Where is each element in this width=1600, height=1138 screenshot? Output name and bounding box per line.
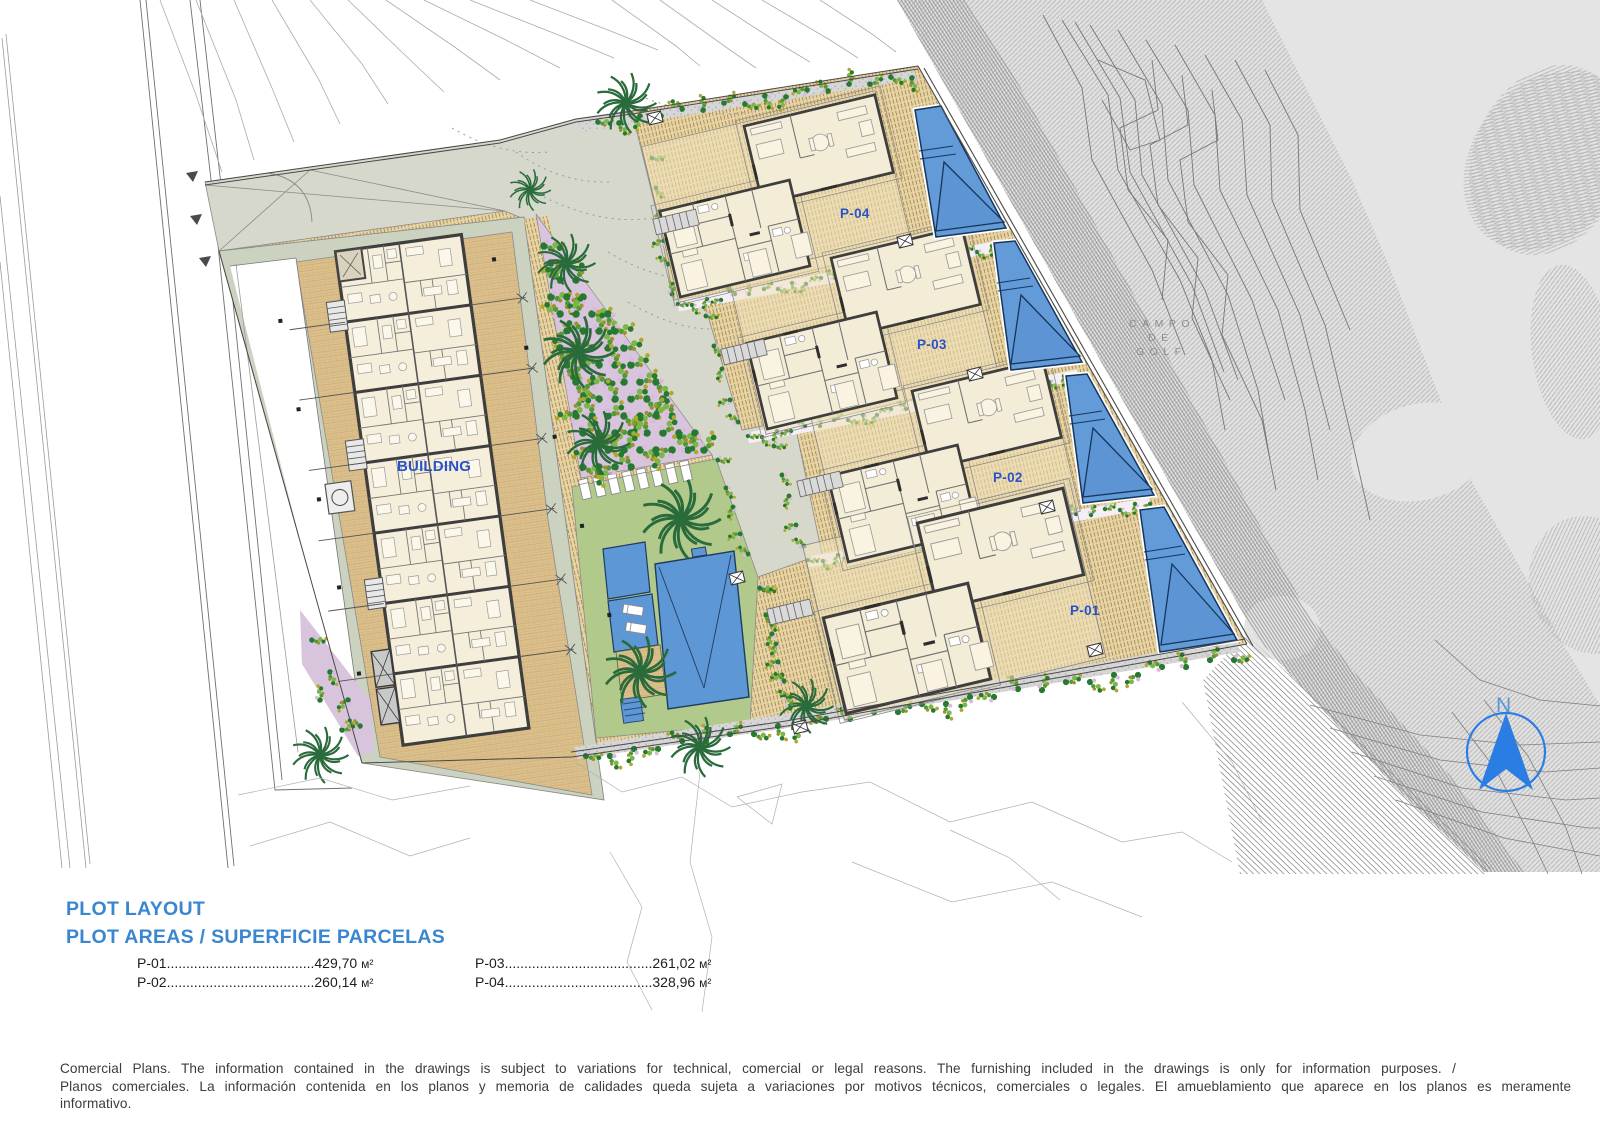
svg-text:P-01..........................: P-01....................................… <box>137 955 373 971</box>
svg-text:P-04: P-04 <box>840 206 870 221</box>
svg-text:P-04..........................: P-04....................................… <box>475 974 711 990</box>
svg-text:N: N <box>1496 694 1511 717</box>
svg-text:DE: DE <box>1148 332 1174 344</box>
svg-text:P-01: P-01 <box>1070 603 1100 618</box>
svg-text:P-03: P-03 <box>917 337 947 352</box>
svg-text:PLOT AREAS / SUPERFICIE PARCEL: PLOT AREAS / SUPERFICIE PARCELAS <box>66 926 445 948</box>
svg-text:P-02..........................: P-02....................................… <box>137 974 373 990</box>
svg-text:P-02: P-02 <box>993 470 1023 485</box>
svg-text:P-03..........................: P-03....................................… <box>475 955 711 971</box>
svg-text:PLOT LAYOUT: PLOT LAYOUT <box>66 898 205 920</box>
svg-text:CAMPO: CAMPO <box>1129 318 1195 330</box>
svg-text:BUILDING: BUILDING <box>397 458 471 475</box>
svg-text:GOLF: GOLF <box>1136 346 1187 358</box>
